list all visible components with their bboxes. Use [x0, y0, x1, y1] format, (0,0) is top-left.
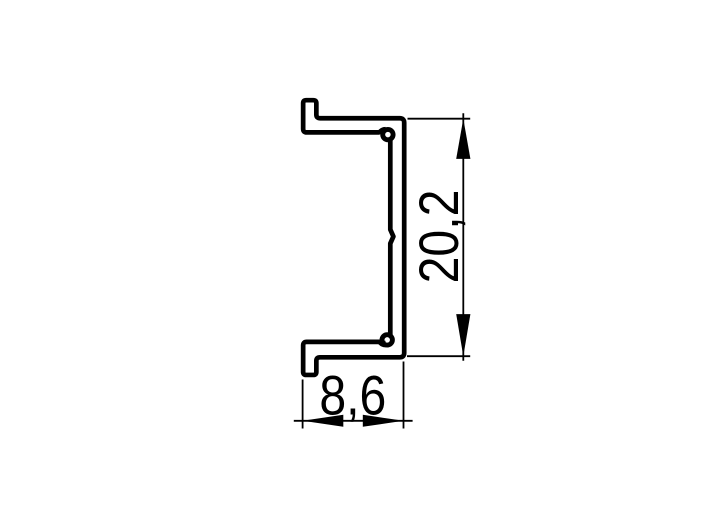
svg-text:20,2: 20,2 [409, 190, 471, 284]
svg-text:8,6: 8,6 [319, 365, 386, 427]
